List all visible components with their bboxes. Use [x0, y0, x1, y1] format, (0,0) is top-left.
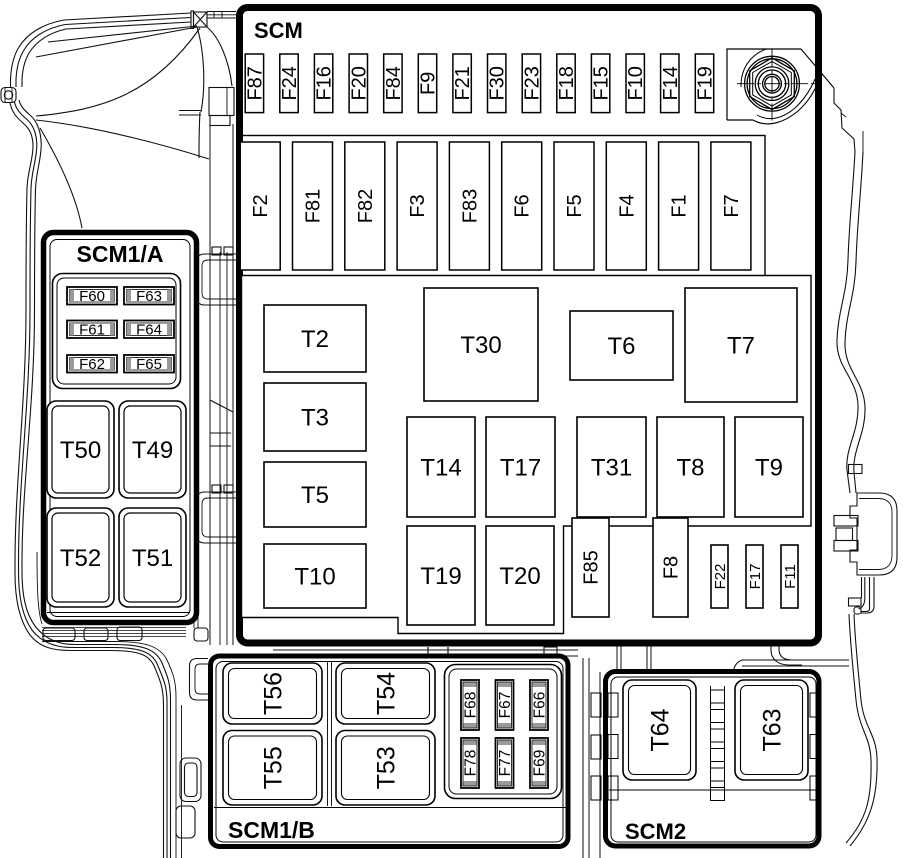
svg-text:F10: F10: [625, 66, 647, 100]
svg-text:T56: T56: [260, 672, 288, 715]
svg-text:F24: F24: [279, 66, 301, 100]
svg-text:T55: T55: [260, 746, 288, 789]
svg-text:F82: F82: [355, 189, 377, 223]
svg-text:F83: F83: [459, 189, 481, 223]
svg-text:F64: F64: [136, 322, 162, 339]
svg-text:T10: T10: [294, 564, 335, 591]
svg-text:T17: T17: [500, 455, 541, 482]
svg-text:F69: F69: [532, 750, 549, 777]
svg-text:T52: T52: [60, 545, 101, 572]
svg-text:F14: F14: [660, 66, 682, 100]
svg-text:T9: T9: [755, 455, 783, 482]
svg-text:F62: F62: [79, 356, 105, 373]
svg-text:F66: F66: [532, 692, 549, 719]
svg-text:T50: T50: [60, 437, 101, 464]
svg-text:F19: F19: [695, 66, 717, 100]
svg-text:T14: T14: [420, 455, 461, 482]
svg-text:T51: T51: [132, 545, 173, 572]
svg-text:F4: F4: [616, 194, 638, 217]
svg-text:T8: T8: [676, 455, 704, 482]
svg-text:T31: T31: [591, 455, 632, 482]
svg-text:T19: T19: [420, 563, 461, 590]
svg-text:F18: F18: [556, 66, 578, 100]
svg-text:F78: F78: [463, 750, 480, 777]
svg-text:F5: F5: [564, 194, 586, 217]
svg-text:T7: T7: [727, 333, 755, 360]
svg-text:T3: T3: [301, 405, 329, 432]
svg-text:F20: F20: [348, 66, 370, 100]
svg-text:F9: F9: [418, 72, 440, 95]
svg-text:F30: F30: [487, 66, 509, 100]
svg-text:SCM2: SCM2: [625, 819, 686, 844]
svg-text:T6: T6: [607, 333, 635, 360]
svg-text:SCM1/A: SCM1/A: [77, 241, 164, 267]
svg-text:F3: F3: [407, 194, 429, 217]
svg-text:F1: F1: [669, 194, 691, 217]
svg-text:F60: F60: [79, 288, 105, 305]
svg-text:F17: F17: [747, 564, 764, 590]
svg-text:F16: F16: [314, 66, 336, 100]
svg-text:SCM: SCM: [254, 18, 303, 43]
svg-text:F65: F65: [136, 356, 162, 373]
svg-text:T54: T54: [373, 672, 401, 715]
svg-text:F63: F63: [136, 288, 162, 305]
svg-text:F67: F67: [497, 692, 514, 719]
svg-text:F61: F61: [79, 322, 105, 339]
svg-text:F84: F84: [383, 66, 405, 100]
svg-text:T49: T49: [132, 437, 173, 464]
svg-text:T64: T64: [647, 708, 675, 751]
svg-text:F11: F11: [782, 564, 799, 589]
svg-text:T30: T30: [460, 332, 501, 359]
svg-text:F15: F15: [591, 66, 613, 100]
svg-text:T2: T2: [301, 326, 329, 353]
svg-text:F87: F87: [244, 66, 266, 100]
svg-text:F23: F23: [521, 66, 543, 100]
svg-text:T63: T63: [759, 708, 787, 751]
svg-text:SCM1/B: SCM1/B: [228, 817, 315, 843]
svg-text:F8: F8: [661, 556, 683, 579]
svg-text:F81: F81: [303, 189, 325, 223]
svg-text:F85: F85: [581, 550, 603, 584]
svg-text:F7: F7: [721, 194, 743, 217]
svg-text:T5: T5: [301, 482, 329, 509]
svg-text:F21: F21: [452, 66, 474, 100]
svg-text:T53: T53: [373, 746, 401, 789]
svg-text:T20: T20: [499, 563, 540, 590]
svg-text:F77: F77: [497, 750, 514, 777]
svg-text:F2: F2: [250, 194, 272, 217]
svg-text:F68: F68: [463, 692, 480, 719]
svg-text:F6: F6: [512, 194, 534, 217]
svg-text:F22: F22: [712, 564, 729, 590]
